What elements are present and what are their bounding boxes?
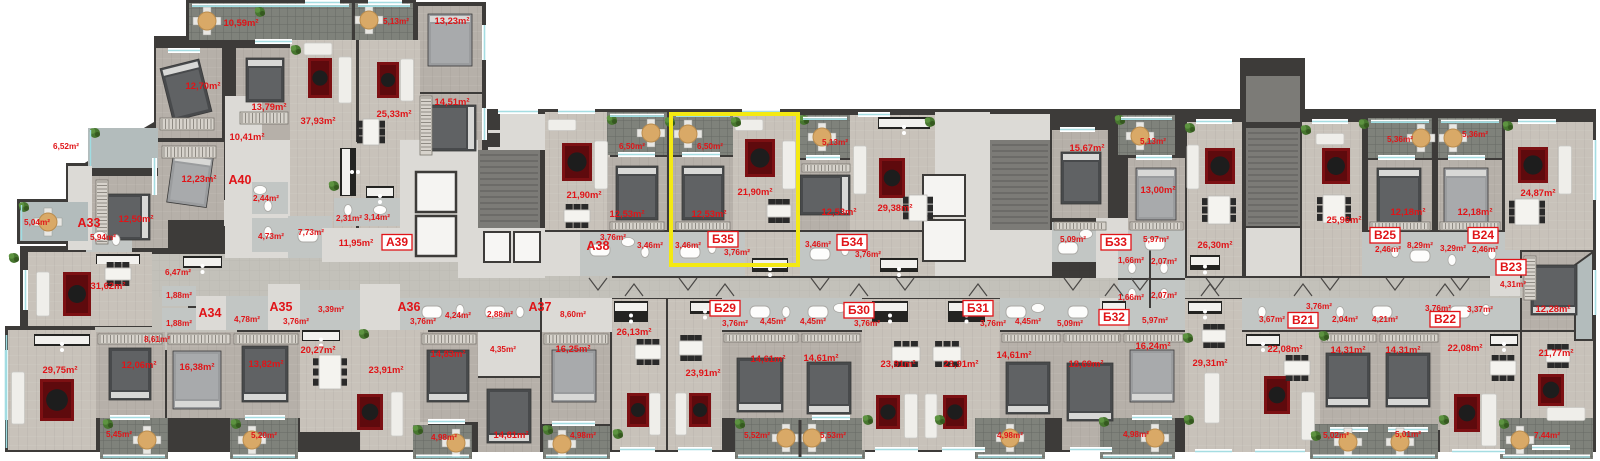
svg-text:14,61m²: 14,61m² (804, 352, 839, 363)
svg-text:5,09m²: 5,09m² (1060, 235, 1086, 244)
svg-text:11,95m²: 11,95m² (339, 237, 373, 248)
svg-text:14,31m²: 14,31m² (1331, 344, 1366, 355)
svg-text:4,45m²: 4,45m² (760, 317, 786, 326)
svg-text:5,13m²: 5,13m² (383, 17, 409, 26)
svg-text:5,97m²: 5,97m² (1142, 316, 1168, 325)
svg-text:8,60m²: 8,60m² (560, 310, 586, 319)
svg-text:2,31m²: 2,31m² (336, 214, 362, 223)
svg-text:20,27m²: 20,27m² (301, 344, 336, 355)
svg-text:7,73m²: 7,73m² (298, 228, 324, 237)
svg-text:14,61m²: 14,61m² (751, 353, 786, 364)
svg-text:Б29: Б29 (714, 301, 736, 315)
svg-text:12,53m²: 12,53m² (610, 208, 645, 219)
svg-text:1,66m²: 1,66m² (1118, 256, 1144, 265)
svg-text:6,52m²: 6,52m² (53, 142, 79, 151)
svg-text:3,76m²: 3,76m² (283, 317, 309, 326)
svg-text:14,31m²: 14,31m² (1386, 344, 1421, 355)
svg-text:5,45m²: 5,45m² (106, 430, 132, 439)
svg-text:5,97m²: 5,97m² (1143, 235, 1169, 244)
svg-text:22,08m²: 22,08m² (1268, 343, 1303, 354)
svg-text:A33: A33 (78, 216, 101, 230)
svg-text:21,77m²: 21,77m² (1539, 347, 1574, 358)
svg-text:12,23m²: 12,23m² (182, 173, 217, 184)
svg-text:12,06m²: 12,06m² (122, 359, 157, 370)
svg-text:A37: A37 (529, 300, 552, 314)
svg-text:B23: B23 (1500, 260, 1522, 274)
svg-text:Б33: Б33 (1105, 235, 1127, 249)
svg-text:29,75m²: 29,75m² (43, 364, 78, 375)
svg-text:2,46m²: 2,46m² (1375, 245, 1401, 254)
svg-text:12,18m²: 12,18m² (1391, 206, 1426, 217)
svg-text:37,93m²: 37,93m² (301, 115, 336, 126)
svg-text:13,23m²: 13,23m² (435, 15, 470, 26)
svg-text:A35: A35 (270, 300, 293, 314)
svg-text:23,91m²: 23,91m² (686, 367, 721, 378)
svg-text:A40: A40 (229, 173, 252, 187)
svg-text:25,96m²: 25,96m² (1327, 214, 1362, 225)
svg-text:26,13m²: 26,13m² (617, 326, 652, 337)
svg-text:1,88m²: 1,88m² (166, 291, 192, 300)
svg-text:4,98m²: 4,98m² (1123, 430, 1149, 439)
svg-text:12,50m²: 12,50m² (119, 213, 154, 224)
svg-text:26,30m²: 26,30m² (1198, 239, 1233, 250)
svg-text:3,76m²: 3,76m² (980, 319, 1006, 328)
svg-text:6,47m²: 6,47m² (165, 268, 191, 277)
svg-text:5,13m²: 5,13m² (822, 138, 848, 147)
svg-text:12,53m²: 12,53m² (822, 206, 857, 217)
svg-text:6,50m²: 6,50m² (697, 142, 723, 151)
svg-text:3,76m²: 3,76m² (854, 319, 880, 328)
svg-text:5,53m²: 5,53m² (820, 431, 846, 440)
svg-text:1,66m²: 1,66m² (1118, 293, 1144, 302)
svg-text:23,91m²: 23,91m² (944, 358, 979, 369)
svg-text:3,46m²: 3,46m² (637, 241, 663, 250)
svg-text:5,36m²: 5,36m² (1387, 135, 1413, 144)
svg-text:12,28m²: 12,28m² (1536, 303, 1571, 314)
svg-text:16,38m²: 16,38m² (180, 361, 215, 372)
svg-text:7,44m²: 7,44m² (1534, 431, 1560, 440)
svg-text:3,76m²: 3,76m² (855, 250, 881, 259)
svg-text:4,21m²: 4,21m² (1372, 315, 1398, 324)
svg-text:Б32: Б32 (1103, 310, 1125, 324)
svg-text:16,24m²: 16,24m² (1136, 340, 1171, 351)
svg-text:14,61m²: 14,61m² (997, 349, 1032, 360)
svg-text:12,70m²: 12,70m² (186, 80, 221, 91)
svg-text:10,41m²: 10,41m² (230, 131, 265, 142)
svg-text:A38: A38 (587, 239, 610, 253)
svg-text:5,13m²: 5,13m² (1140, 137, 1166, 146)
svg-text:18,69m²: 18,69m² (1069, 358, 1104, 369)
svg-text:Б30: Б30 (848, 303, 870, 317)
svg-text:4,31m²: 4,31m² (1500, 280, 1526, 289)
svg-text:5,94m²: 5,94m² (90, 233, 116, 242)
svg-text:3,39m²: 3,39m² (318, 305, 344, 314)
svg-text:13,79m²: 13,79m² (252, 101, 287, 112)
svg-text:B25: B25 (1374, 228, 1396, 242)
svg-text:5,36m²: 5,36m² (1462, 130, 1488, 139)
svg-text:Б35: Б35 (712, 232, 734, 246)
svg-text:5,20m²: 5,20m² (251, 431, 277, 440)
svg-text:4,98m²: 4,98m² (431, 433, 457, 442)
svg-text:3,76m²: 3,76m² (724, 248, 750, 257)
svg-text:8,61m²: 8,61m² (144, 335, 170, 344)
svg-text:4,98m²: 4,98m² (570, 431, 596, 440)
svg-text:4,78m²: 4,78m² (234, 315, 260, 324)
svg-text:29,38m²: 29,38m² (878, 202, 913, 213)
svg-text:A36: A36 (398, 300, 421, 314)
svg-text:Б34: Б34 (841, 235, 863, 249)
svg-text:3,67m²: 3,67m² (1259, 315, 1285, 324)
svg-text:2,44m²: 2,44m² (253, 194, 279, 203)
svg-text:3,76m²: 3,76m² (410, 317, 436, 326)
svg-text:21,90m²: 21,90m² (567, 189, 602, 200)
svg-text:8,29m²: 8,29m² (1407, 241, 1433, 250)
svg-text:A34: A34 (199, 306, 222, 320)
svg-text:4,98m²: 4,98m² (997, 431, 1023, 440)
svg-text:16,25m²: 16,25m² (556, 343, 591, 354)
svg-text:13,82m²: 13,82m² (249, 358, 284, 369)
svg-text:4,45m²: 4,45m² (1015, 317, 1041, 326)
svg-text:13,00m²: 13,00m² (1141, 184, 1176, 195)
svg-text:5,52m²: 5,52m² (744, 431, 770, 440)
svg-text:31,62m²: 31,62m² (91, 280, 126, 291)
svg-text:23,91m²: 23,91m² (369, 364, 404, 375)
svg-text:14,81m²: 14,81m² (494, 429, 529, 440)
svg-text:B22: B22 (1434, 312, 1456, 326)
svg-text:4,45m²: 4,45m² (800, 317, 826, 326)
svg-text:3,46m²: 3,46m² (805, 240, 831, 249)
svg-text:6,50m²: 6,50m² (619, 142, 645, 151)
svg-text:10,59m²: 10,59m² (224, 17, 259, 28)
svg-text:15,67m²: 15,67m² (1070, 142, 1105, 153)
svg-text:14,83m²: 14,83m² (431, 348, 466, 359)
svg-text:2,07m²: 2,07m² (1151, 291, 1177, 300)
svg-text:1,88m²: 1,88m² (166, 319, 192, 328)
svg-text:12,53m²: 12,53m² (692, 208, 727, 219)
svg-text:3,14m²: 3,14m² (364, 213, 390, 222)
svg-text:23,91m²: 23,91m² (881, 358, 916, 369)
svg-text:2,04m²: 2,04m² (1332, 315, 1358, 324)
svg-text:5,09m²: 5,09m² (1057, 319, 1083, 328)
svg-text:3,76m²: 3,76m² (1306, 302, 1332, 311)
svg-text:3,76m²: 3,76m² (722, 319, 748, 328)
svg-text:A39: A39 (386, 235, 408, 249)
svg-text:21,90m²: 21,90m² (738, 186, 773, 197)
svg-text:12,18m²: 12,18m² (1458, 206, 1493, 217)
svg-text:4,35m²: 4,35m² (490, 345, 516, 354)
svg-text:14,51m²: 14,51m² (435, 96, 470, 107)
svg-text:24,87m²: 24,87m² (1521, 187, 1556, 198)
svg-text:2,46m²: 2,46m² (1472, 245, 1498, 254)
svg-text:2,88m²: 2,88m² (487, 310, 513, 319)
svg-text:B21: B21 (1292, 313, 1314, 327)
svg-text:4,73m²: 4,73m² (258, 232, 284, 241)
svg-text:3,46m²: 3,46m² (675, 241, 701, 250)
svg-text:4,24m²: 4,24m² (445, 311, 471, 320)
svg-text:3,37m²: 3,37m² (1467, 305, 1493, 314)
svg-text:29,31m²: 29,31m² (1193, 357, 1228, 368)
svg-text:3,29m²: 3,29m² (1440, 244, 1466, 253)
svg-text:25,33m²: 25,33m² (377, 108, 412, 119)
svg-text:B24: B24 (1472, 228, 1494, 242)
svg-text:5,01m²: 5,01m² (1395, 430, 1421, 439)
svg-text:2,07m²: 2,07m² (1151, 257, 1177, 266)
svg-text:5,02m²: 5,02m² (1323, 431, 1349, 440)
svg-text:5,04m²: 5,04m² (24, 218, 50, 227)
svg-text:Б31: Б31 (967, 301, 989, 315)
svg-text:22,08m²: 22,08m² (1448, 342, 1483, 353)
